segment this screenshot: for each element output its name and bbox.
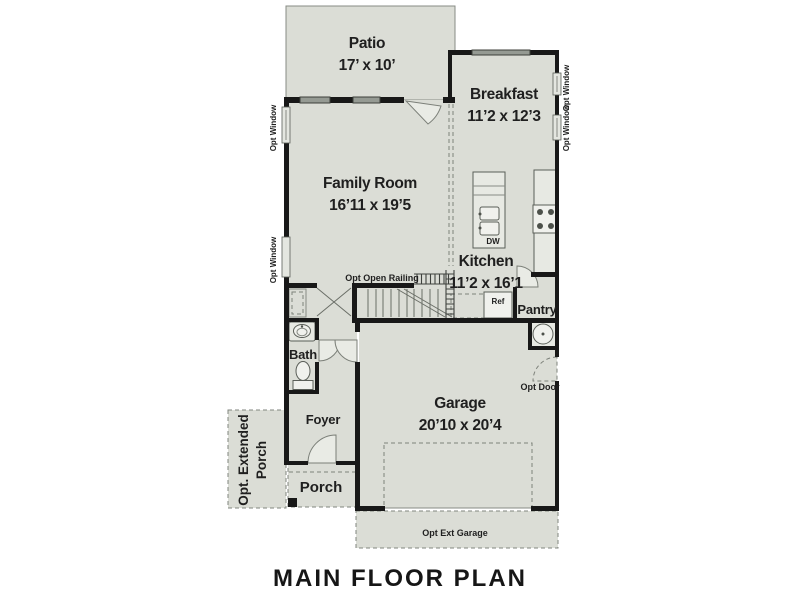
breakfast-window — [472, 50, 530, 55]
garage-label: Garage — [434, 395, 486, 412]
breakfast-label: Breakfast — [470, 86, 538, 103]
toilet-tank — [293, 381, 313, 390]
opt-window-label: Opt Window — [562, 64, 571, 111]
faucet-dot — [479, 213, 482, 216]
wall-segment — [531, 272, 559, 277]
extended-porch-label-line2: Porch — [254, 441, 269, 479]
opt-window-label: Opt Window — [269, 104, 278, 151]
wall-segment — [555, 381, 559, 511]
water-heater-dot — [542, 333, 545, 336]
extended-porch-label-line1: Opt. Extended — [236, 414, 251, 506]
patio-area — [286, 6, 455, 100]
opt-open-railing-label: Opt Open Railing — [345, 273, 419, 283]
faucet-dot — [479, 227, 482, 230]
opt-ext-garage-label: Opt Ext Garage — [422, 528, 488, 538]
wall-segment — [315, 362, 319, 394]
burner — [548, 223, 554, 229]
wall-segment — [284, 318, 319, 322]
burner — [537, 209, 543, 215]
refrigerator-label: Ref — [492, 297, 505, 306]
kitchen-label: Kitchen — [459, 253, 514, 270]
opt-window-left-2 — [282, 237, 290, 277]
kitchen-dims: 11’2 x 16’1 — [449, 275, 523, 292]
patio-window — [353, 97, 380, 103]
opt-door-label: Opt Door — [521, 382, 560, 392]
wall-segment — [528, 320, 532, 348]
range — [533, 205, 556, 233]
wall-segment — [528, 346, 559, 350]
burner — [537, 223, 543, 229]
garage-area — [359, 322, 557, 508]
wall-segment — [352, 283, 357, 323]
plan-title: MAIN FLOOR PLAN — [273, 565, 527, 592]
floor-plan-page: Patio 17’ x 10’ Breakfast 11’2 x 12’3 Fa… — [0, 0, 800, 600]
wall-segment — [352, 283, 414, 288]
bath-faucet-dot — [301, 325, 303, 327]
porch-column — [288, 498, 297, 507]
patio-label: Patio — [349, 35, 385, 52]
family-room-label: Family Room — [323, 175, 417, 192]
bath-label: Bath — [289, 347, 317, 362]
wall-segment — [531, 506, 559, 511]
wall-segment — [284, 390, 319, 394]
dishwasher-label: DW — [486, 237, 500, 246]
garage-dims: 20’10 x 20’4 — [419, 417, 502, 434]
floor-plan-drawing: Patio 17’ x 10’ Breakfast 11’2 x 12’3 Fa… — [0, 0, 800, 600]
patio-dims: 17’ x 10’ — [339, 57, 396, 74]
patio-window — [300, 97, 330, 103]
wall-segment — [357, 506, 385, 511]
opt-window-label: Opt Window — [269, 236, 278, 283]
wall-segment — [315, 318, 319, 340]
sink-basin-top — [480, 207, 499, 220]
sink-basin-bottom — [480, 222, 499, 235]
breakfast-dims: 11’2 x 12’3 — [467, 108, 541, 125]
foyer-label: Foyer — [306, 412, 341, 427]
family-room-dims: 16’11 x 19’5 — [329, 197, 411, 214]
porch-label: Porch — [300, 479, 343, 496]
toilet-bowl — [296, 362, 310, 381]
opt-window-label: Opt Window — [562, 104, 571, 151]
wall-segment — [284, 97, 289, 465]
wall-segment — [355, 362, 360, 511]
burner — [548, 209, 554, 215]
wall-segment — [448, 50, 452, 103]
pantry-label: Pantry — [517, 302, 557, 317]
